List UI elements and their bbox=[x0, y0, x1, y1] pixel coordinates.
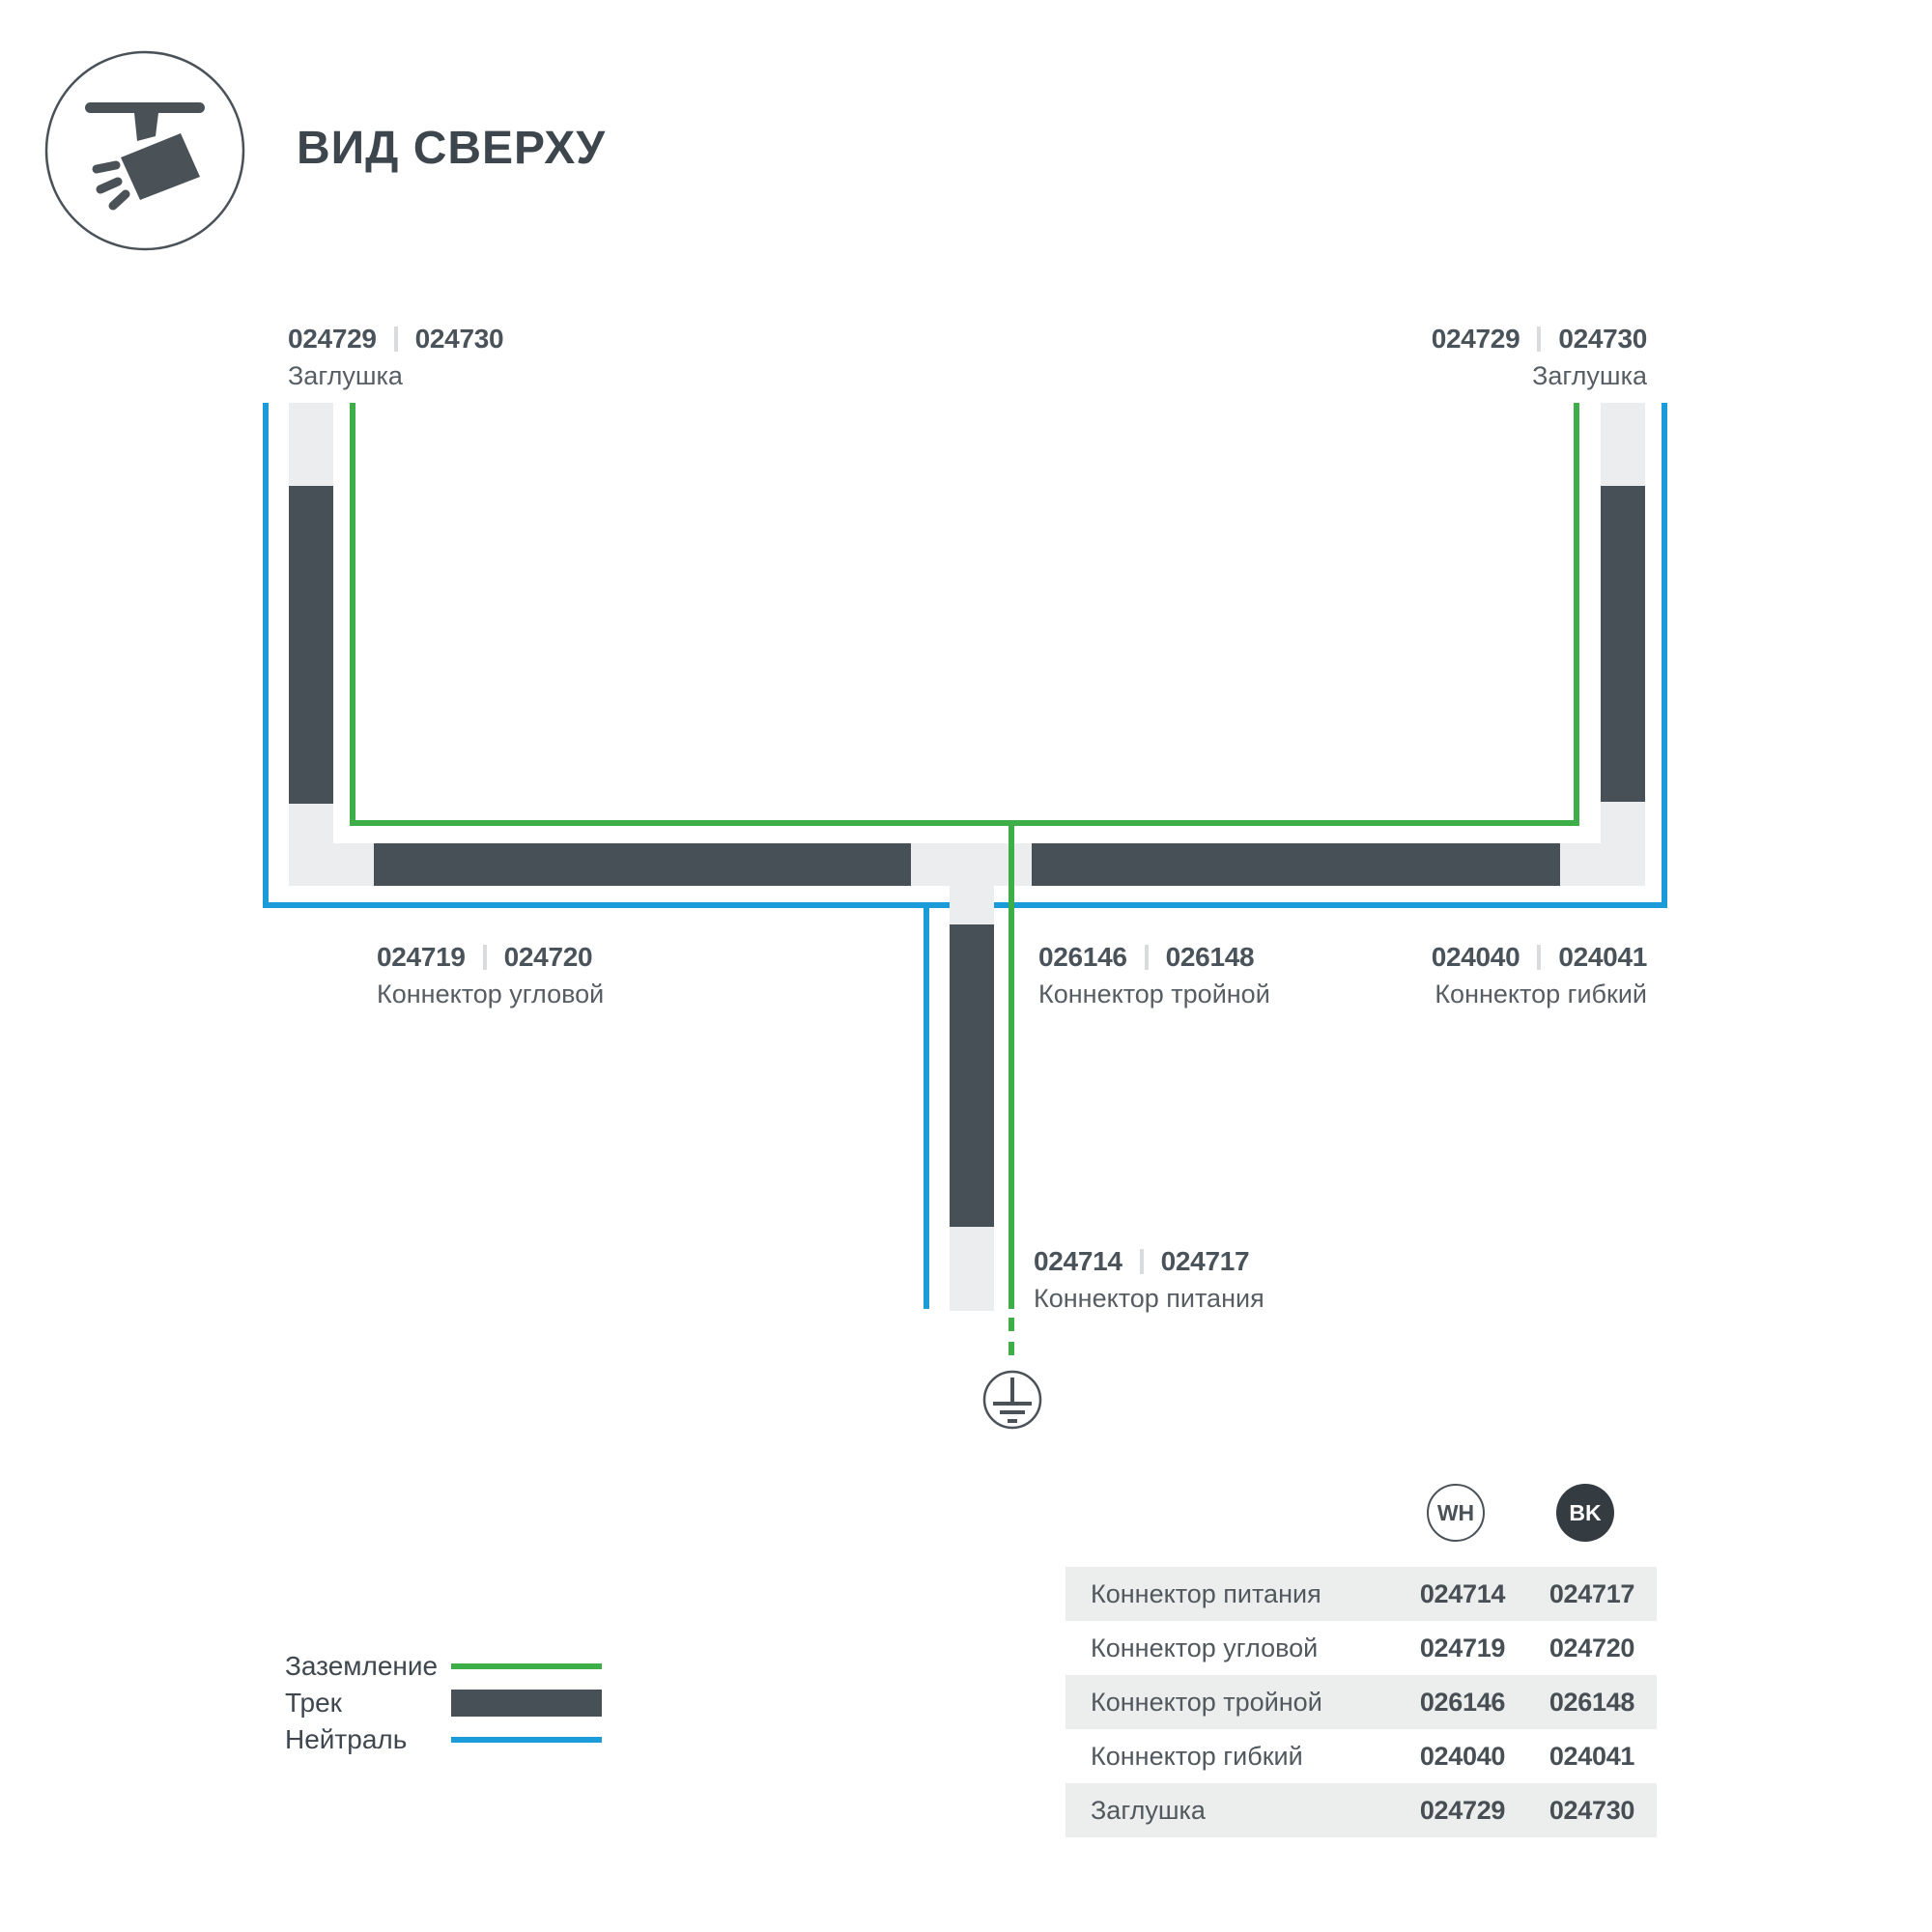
color-chip-black: BK bbox=[1556, 1484, 1614, 1542]
endcap-right-block bbox=[1601, 403, 1645, 486]
part-name: Заглушка bbox=[288, 361, 503, 390]
flex-connector-block bbox=[1601, 802, 1645, 886]
table-row: Коннектор угловой 024719 024720 bbox=[1065, 1621, 1657, 1675]
track-bar-left bbox=[289, 486, 333, 804]
part-codes: 026146026148 bbox=[1038, 943, 1270, 972]
track-bar-top-right bbox=[1032, 843, 1560, 886]
legend: Заземление Трек Нейтраль bbox=[285, 1648, 602, 1758]
code-divider bbox=[483, 945, 487, 970]
part-codes: 024729024730 bbox=[1432, 325, 1647, 354]
part-name: Заглушка bbox=[1432, 361, 1647, 390]
part-name: Коннектор угловой bbox=[377, 980, 604, 1009]
legend-item-neutral: Нейтраль bbox=[285, 1721, 602, 1758]
track-segments bbox=[289, 403, 1645, 1311]
code-divider bbox=[1537, 945, 1541, 970]
label-endcap-right: 024729024730 Заглушка bbox=[1432, 325, 1647, 390]
track-bar-swatch bbox=[451, 1690, 602, 1717]
label-power-connector: 024714024717 Коннектор питания bbox=[1034, 1247, 1264, 1313]
power-connector-block bbox=[950, 1227, 994, 1311]
legend-item-track: Трек bbox=[285, 1685, 602, 1721]
label-endcap-left: 024729024730 Заглушка bbox=[288, 325, 503, 390]
code-divider bbox=[1145, 945, 1149, 970]
track-bar-top-left bbox=[374, 843, 911, 886]
label-triple-connector: 026146026148 Коннектор тройной bbox=[1038, 943, 1270, 1009]
ground-line-swatch bbox=[451, 1663, 602, 1669]
part-codes: 024714024717 bbox=[1034, 1247, 1264, 1276]
code-divider bbox=[394, 327, 398, 352]
table-row: Коннектор питания 024714 024717 bbox=[1065, 1567, 1657, 1621]
part-name: Коннектор тройной bbox=[1038, 980, 1270, 1009]
code-divider bbox=[1140, 1249, 1144, 1274]
track-bar-right bbox=[1601, 486, 1645, 802]
corner-connector-block bbox=[289, 804, 333, 886]
label-flex-connector: 024040024041 Коннектор гибкий bbox=[1432, 943, 1647, 1009]
label-corner-connector: 024719024720 Коннектор угловой bbox=[377, 943, 604, 1009]
part-codes: 024719024720 bbox=[377, 943, 604, 972]
part-name: Коннектор гибкий bbox=[1432, 980, 1647, 1009]
part-name: Коннектор питания bbox=[1034, 1284, 1264, 1313]
legend-item-ground: Заземление bbox=[285, 1648, 602, 1685]
endcap-left-block bbox=[289, 403, 333, 486]
code-divider bbox=[1537, 327, 1541, 352]
table-row: Коннектор гибкий 024040 024041 bbox=[1065, 1729, 1657, 1783]
part-codes: 024040024041 bbox=[1432, 943, 1647, 972]
earth-ground-icon bbox=[984, 1372, 1040, 1428]
top-view-diagram-page: ВИД СВЕРХУ bbox=[0, 0, 1932, 1932]
table-row: Заглушка 024729 024730 bbox=[1065, 1783, 1657, 1837]
table-row: Коннектор тройной 026146 026148 bbox=[1065, 1675, 1657, 1729]
neutral-line-swatch bbox=[451, 1737, 602, 1743]
track-bar-stem bbox=[950, 924, 994, 1227]
part-codes: 024729024730 bbox=[288, 325, 503, 354]
parts-table: Коннектор питания 024714 024717 Коннекто… bbox=[1065, 1567, 1657, 1837]
color-chip-white: WH bbox=[1427, 1484, 1485, 1542]
